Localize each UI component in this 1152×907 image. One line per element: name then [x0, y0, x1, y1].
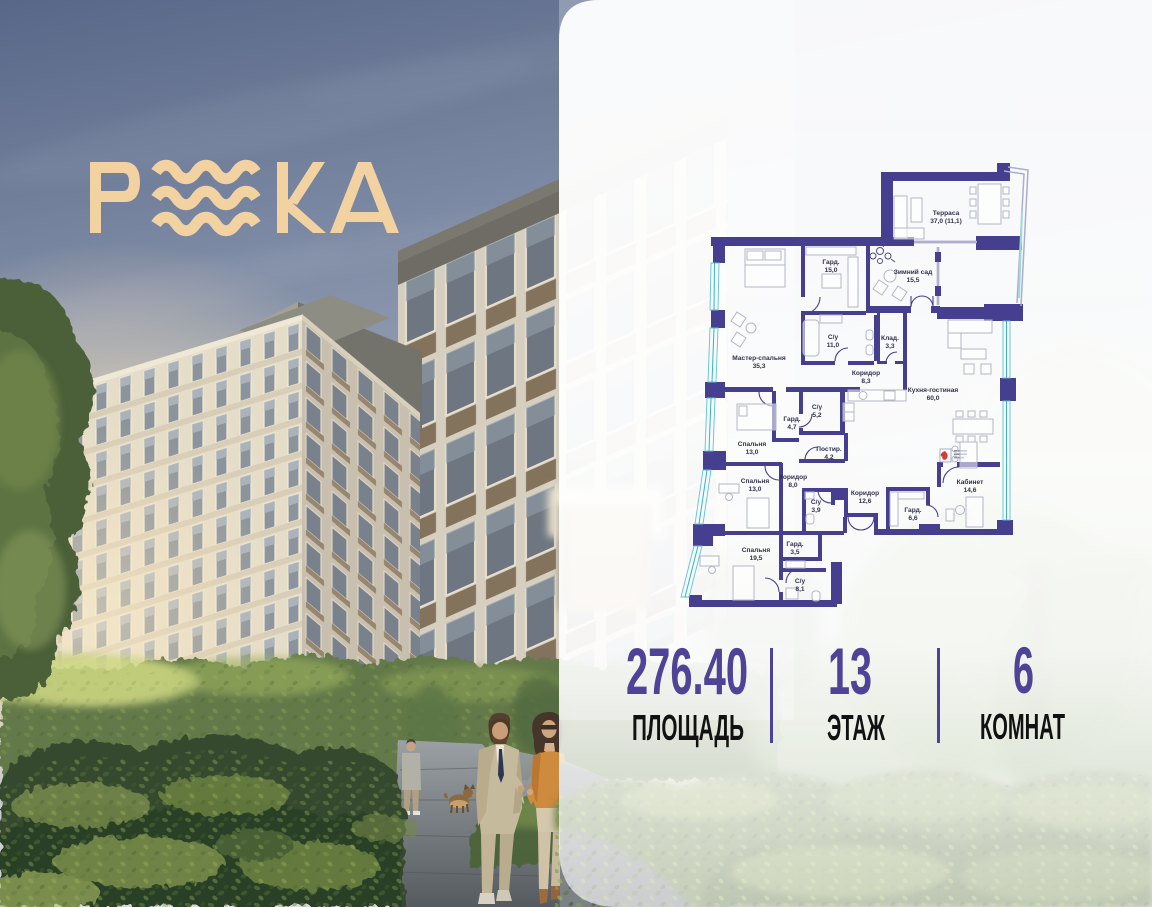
svg-text:КОМНАТ: КОМНАТ: [980, 706, 1065, 747]
svg-text:14,6: 14,6: [964, 487, 977, 494]
svg-text:4,2: 4,2: [824, 454, 833, 461]
svg-text:Спальня: Спальня: [742, 547, 771, 554]
svg-text:6,6: 6,6: [908, 515, 917, 522]
svg-text:5,2: 5,2: [812, 412, 821, 419]
svg-text:Постир.: Постир.: [816, 446, 842, 453]
svg-text:3,9: 3,9: [811, 507, 820, 514]
svg-text:Спальня: Спальня: [741, 478, 770, 485]
svg-text:13,0: 13,0: [749, 486, 762, 493]
svg-text:С/у: С/у: [795, 578, 806, 585]
svg-text:Клад.: Клад.: [881, 335, 899, 342]
svg-text:Гард.: Гард.: [904, 507, 921, 514]
svg-text:Спальня: Спальня: [738, 441, 767, 448]
svg-text:Мастер-спальня: Мастер-спальня: [732, 355, 786, 362]
svg-text:8,0: 8,0: [788, 482, 797, 489]
svg-text:Терраса: Терраса: [933, 210, 960, 217]
svg-text:4,7: 4,7: [787, 424, 796, 431]
svg-text:Гард.: Гард.: [786, 541, 803, 548]
svg-text:Коридор: Коридор: [851, 490, 879, 497]
svg-text:Коридор: Коридор: [779, 474, 807, 481]
svg-text:15,0: 15,0: [825, 267, 838, 274]
svg-text:15,5: 15,5: [907, 277, 920, 284]
svg-text:Кабинет: Кабинет: [957, 478, 984, 486]
svg-text:13,0: 13,0: [746, 449, 759, 456]
svg-text:60,0: 60,0: [927, 395, 940, 402]
svg-text:Гард.: Гард.: [783, 416, 800, 423]
svg-text:3,5: 3,5: [790, 549, 799, 556]
svg-text:19,5: 19,5: [750, 555, 763, 562]
svg-text:Гард.: Гард.: [822, 259, 839, 266]
svg-text:С/у: С/у: [812, 404, 823, 411]
svg-text:8,3: 8,3: [861, 378, 870, 385]
svg-text:С/у: С/у: [828, 334, 839, 341]
svg-text:276.40: 276.40: [626, 634, 748, 708]
svg-text:С/у: С/у: [811, 499, 822, 506]
svg-text:12,6: 12,6: [859, 498, 872, 505]
svg-text:Коридор: Коридор: [852, 370, 880, 377]
svg-text:11,0: 11,0: [827, 342, 840, 349]
svg-text:37,0 (11,1): 37,0 (11,1): [930, 218, 962, 225]
svg-text:3,3: 3,3: [885, 343, 894, 350]
svg-text:ЭТАЖ: ЭТАЖ: [827, 707, 885, 748]
svg-text:8,1: 8,1: [795, 586, 804, 593]
svg-text:ПЛОЩАДЬ: ПЛОЩАДЬ: [632, 707, 744, 748]
svg-text:35,3: 35,3: [753, 363, 766, 370]
svg-text:Кухня-гостиная: Кухня-гостиная: [908, 387, 959, 394]
svg-text:13: 13: [828, 634, 872, 708]
svg-text:Зимний сад: Зимний сад: [894, 268, 933, 276]
svg-text:6: 6: [1013, 633, 1034, 707]
